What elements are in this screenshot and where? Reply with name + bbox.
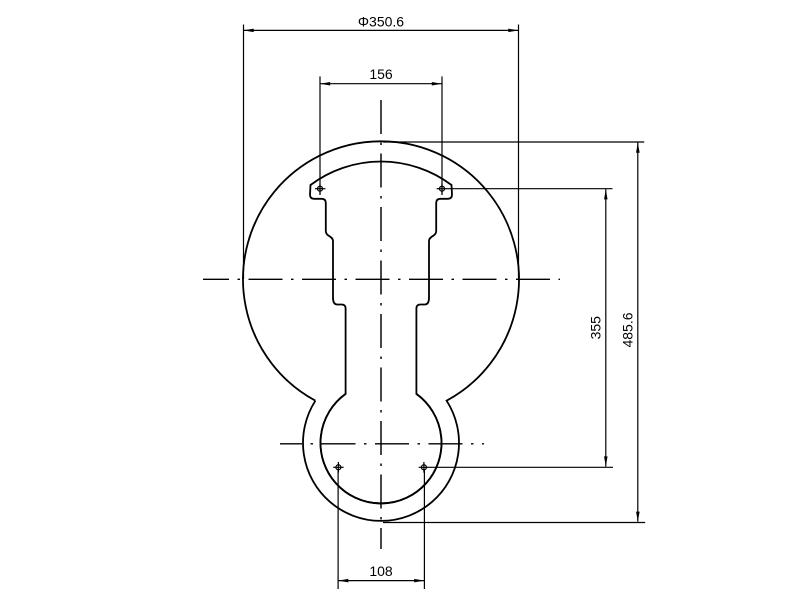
svg-text:Φ350.6: Φ350.6 [358,14,404,30]
svg-text:485.6: 485.6 [619,312,635,347]
svg-text:108: 108 [369,563,393,579]
svg-text:355: 355 [587,316,603,340]
svg-text:156: 156 [369,66,393,82]
